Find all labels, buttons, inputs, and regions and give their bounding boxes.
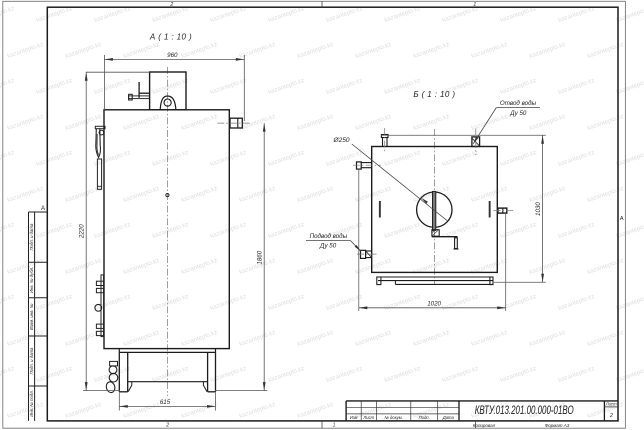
svg-text:Лист: Лист <box>362 415 374 420</box>
svg-text:А: А <box>41 206 45 212</box>
svg-text:Инв. № подл.: Инв. № подл. <box>29 390 34 417</box>
svg-text:1: 1 <box>333 422 336 428</box>
svg-text:960: 960 <box>167 52 178 59</box>
svg-text:Изм: Изм <box>350 415 358 420</box>
svg-text:1020: 1020 <box>427 301 441 308</box>
svg-text:Дата: Дата <box>442 415 455 420</box>
svg-text:Копировал: Копировал <box>473 423 496 428</box>
svg-text:Подвод воды: Подвод воды <box>310 233 348 240</box>
svg-text:1: 1 <box>473 2 476 8</box>
svg-text:КВТУ.013.201.00.000-01ВО: КВТУ.013.201.00.000-01ВО <box>475 403 574 417</box>
svg-text:Б ( 1 : 10 ): Б ( 1 : 10 ) <box>413 90 455 99</box>
svg-text:Ду 50: Ду 50 <box>319 243 337 250</box>
svg-text:Подп.: Подп. <box>419 415 430 420</box>
svg-text:615: 615 <box>160 399 171 406</box>
svg-text:Формат А3: Формат А3 <box>545 423 570 428</box>
svg-text:Подп. и дата: Подп. и дата <box>29 223 34 251</box>
svg-text:Подп. и дата: Подп. и дата <box>29 347 34 375</box>
svg-text:2220: 2220 <box>79 224 86 239</box>
svg-text:А: А <box>620 216 624 222</box>
svg-text:Инв. № дубл.: Инв. № дубл. <box>29 267 34 293</box>
svg-text:№ докум.: № докум. <box>384 415 402 420</box>
svg-text:А ( 1 : 10 ): А ( 1 : 10 ) <box>149 33 192 42</box>
svg-text:Лист: Лист <box>605 402 617 407</box>
svg-text:Ду 50: Ду 50 <box>509 110 527 117</box>
svg-text:1860: 1860 <box>256 250 263 264</box>
svg-text:Ø250: Ø250 <box>333 137 350 144</box>
svg-text:1030: 1030 <box>535 202 542 216</box>
svg-text:2: 2 <box>609 413 613 419</box>
svg-text:2: 2 <box>169 2 173 8</box>
svg-text:Отвод воды: Отвод воды <box>500 100 537 107</box>
svg-text:2: 2 <box>165 423 169 429</box>
svg-text:Взам. инв. №: Взам. инв. № <box>29 303 34 330</box>
